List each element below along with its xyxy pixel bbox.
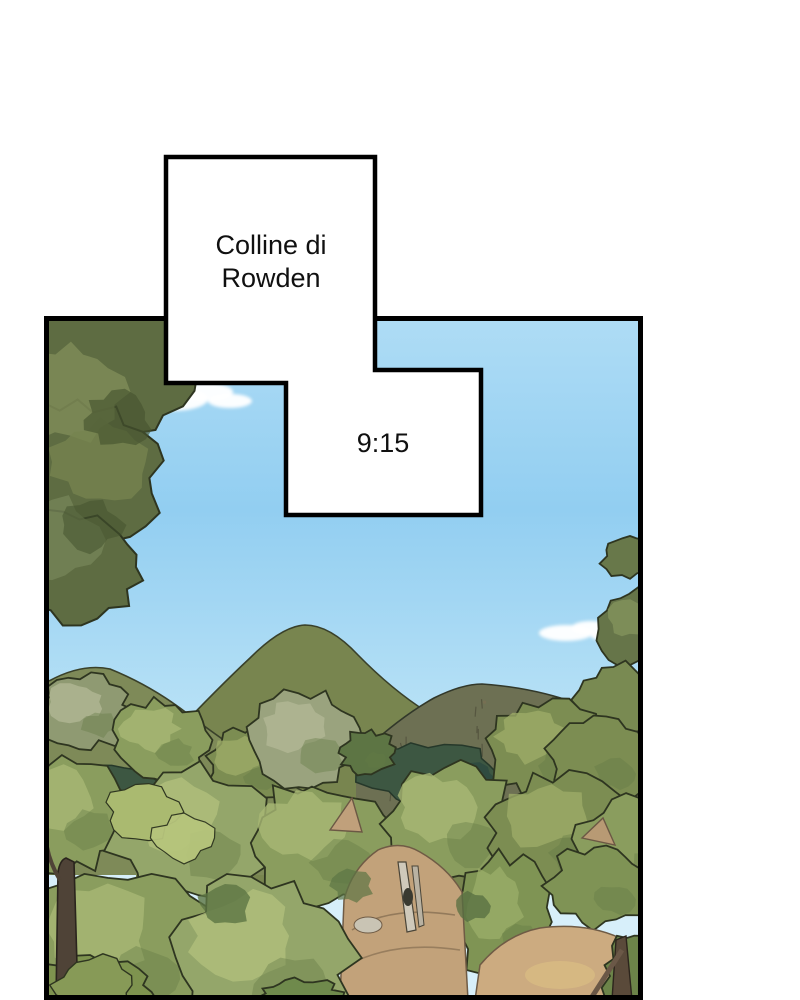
comic-panel (44, 316, 643, 1000)
comic-page: Colline di Rowden 9:15 (0, 0, 800, 1000)
caption-time: 9:15 (291, 424, 475, 462)
landscape-illustration (49, 321, 638, 995)
caption-location: Colline di Rowden (173, 222, 369, 302)
